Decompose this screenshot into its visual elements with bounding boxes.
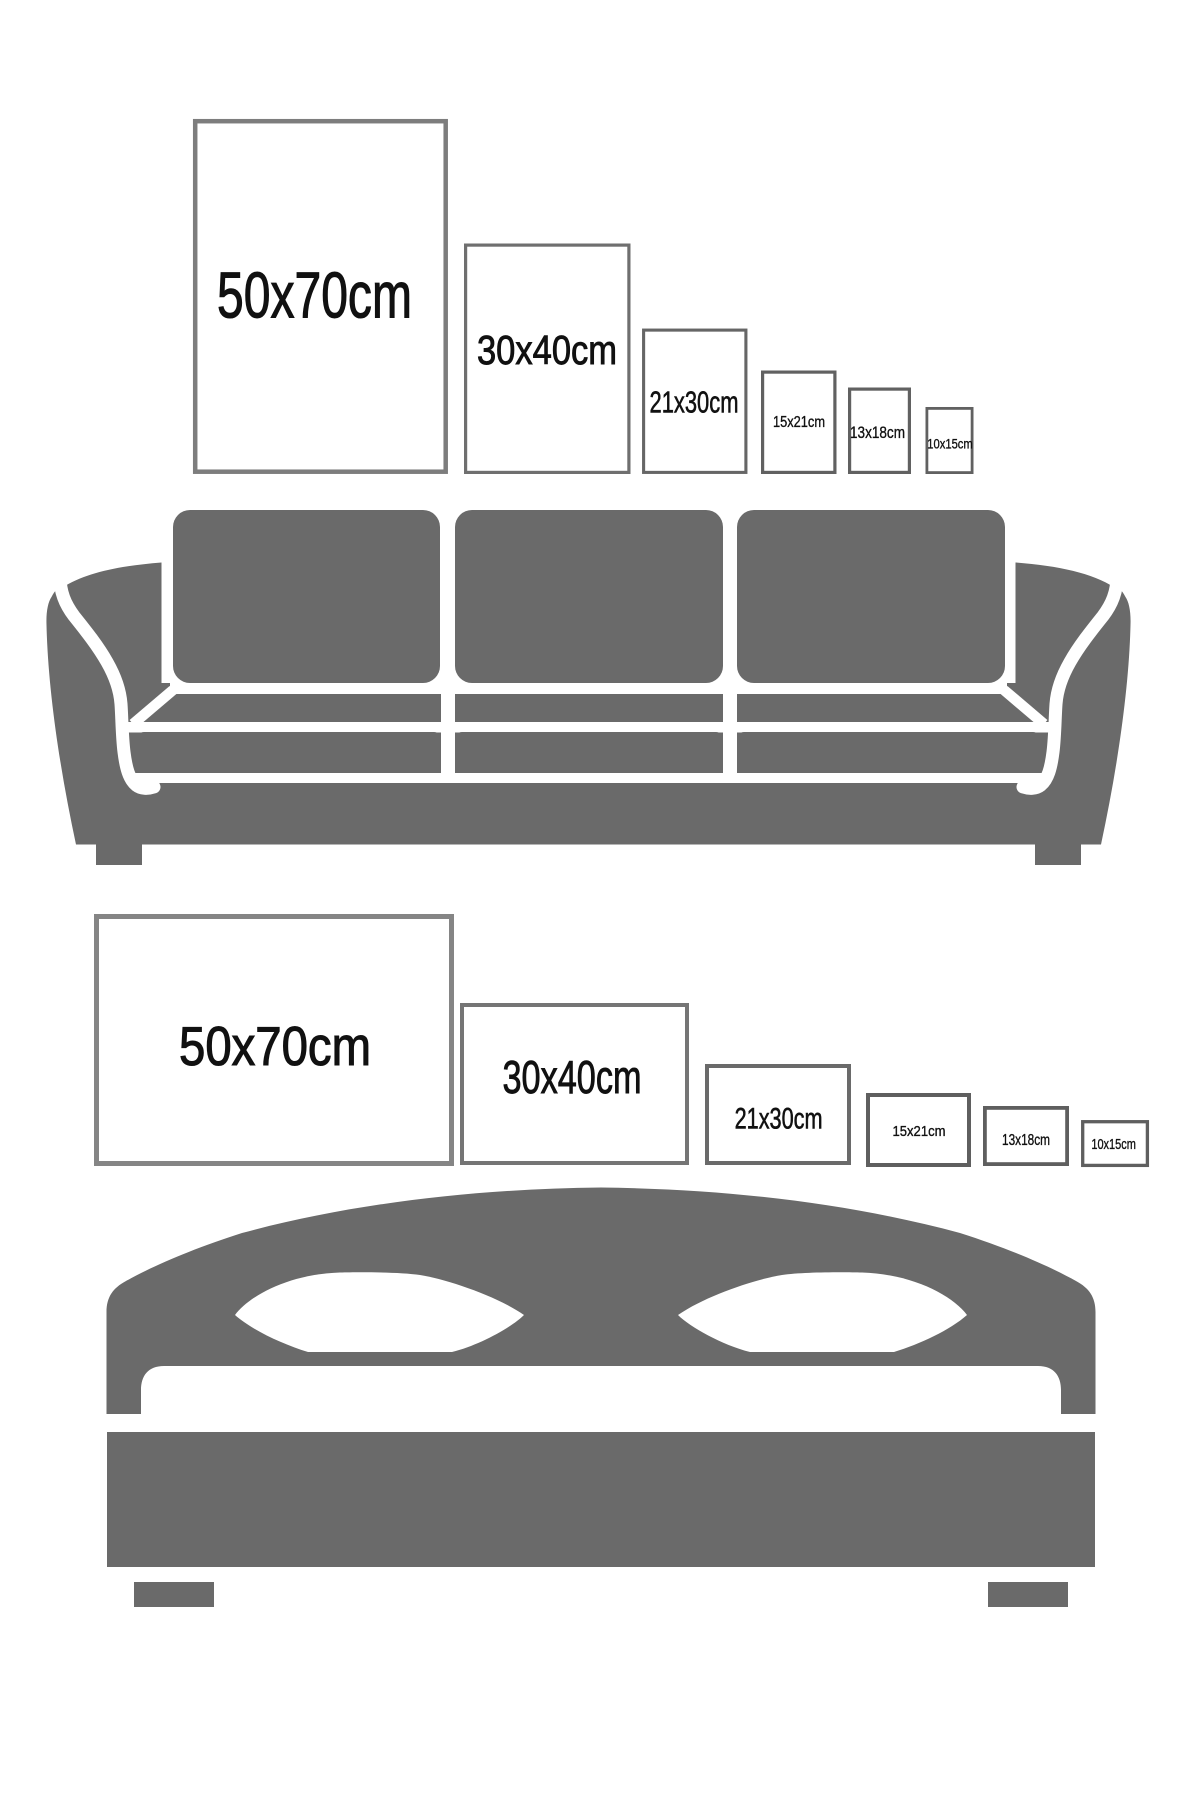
svg-text:21x30cm: 21x30cm	[650, 385, 739, 420]
svg-text:15x21cm: 15x21cm	[893, 1123, 946, 1140]
svg-text:21x30cm: 21x30cm	[735, 1103, 823, 1136]
svg-text:10x15cm: 10x15cm	[927, 436, 973, 452]
svg-text:15x21cm: 15x21cm	[773, 414, 825, 431]
svg-text:30x40cm: 30x40cm	[503, 1051, 642, 1103]
svg-text:13x18cm: 13x18cm	[850, 423, 905, 442]
svg-text:13x18cm: 13x18cm	[1002, 1132, 1050, 1149]
svg-text:30x40cm: 30x40cm	[477, 327, 617, 373]
svg-text:50x70cm: 50x70cm	[179, 1015, 371, 1077]
svg-text:10x15cm: 10x15cm	[1091, 1136, 1136, 1153]
svg-text:50x70cm: 50x70cm	[217, 259, 412, 332]
